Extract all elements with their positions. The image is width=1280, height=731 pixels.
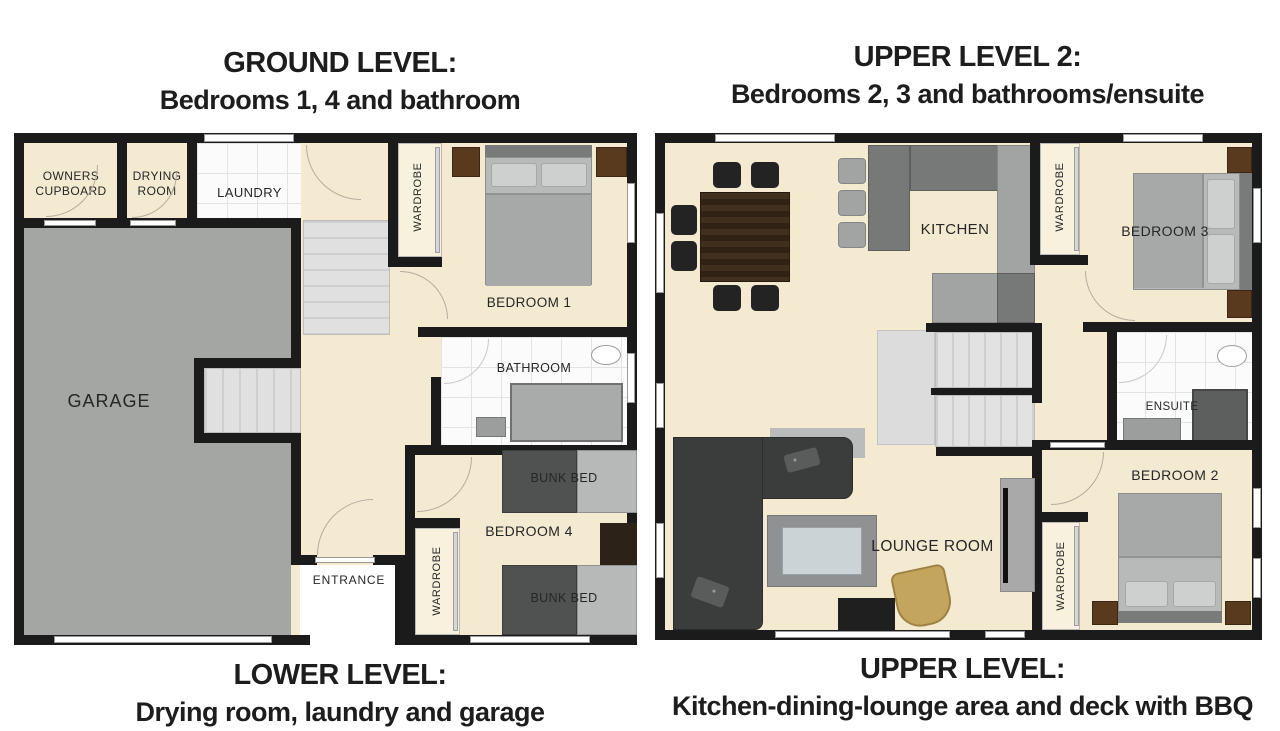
door-threshold	[130, 220, 176, 226]
ensuite-label: ENSUITE	[1117, 401, 1227, 413]
dining-chair	[671, 205, 697, 235]
stairs-upper-flight	[935, 332, 1035, 388]
ground-level-plan: WARDROBE BEDROOM 1 BATHROOM WARDROBE BUN…	[14, 133, 637, 645]
title-lower-level: LOWER LEVEL:	[55, 656, 625, 694]
wall	[1032, 323, 1042, 403]
lounge-room-label: LOUNGE ROOM	[860, 538, 1005, 556]
window	[775, 631, 950, 638]
window	[204, 134, 294, 142]
title-ground-level: GROUND LEVEL:	[55, 44, 625, 82]
window	[1253, 188, 1261, 243]
dining-table-icon	[700, 192, 790, 282]
wardrobe-bedroom1-label: WARDROBE	[412, 147, 424, 247]
entrance-threshold	[315, 557, 375, 563]
wall	[936, 447, 1042, 456]
wall	[926, 323, 1042, 332]
window	[470, 636, 590, 643]
bedroom1-label: BEDROOM 1	[454, 295, 604, 310]
floorplan-page: { "titles": { "left_top_1": "GROUND LEVE…	[0, 0, 1280, 720]
wall	[405, 518, 460, 528]
stairs-hall	[303, 220, 390, 335]
blanket	[1119, 494, 1221, 558]
wall	[194, 433, 301, 443]
wall	[655, 630, 1262, 640]
toilet-icon	[1217, 345, 1247, 367]
wall	[395, 555, 405, 645]
blanket	[486, 193, 591, 286]
dining-chair	[713, 285, 741, 311]
wall	[373, 555, 405, 565]
kitchen-counter	[868, 145, 910, 251]
tv-icon	[1003, 488, 1008, 583]
wall	[388, 133, 398, 257]
bunk-bed-top-label: BUNK BED	[514, 471, 614, 485]
bedside-table	[1092, 601, 1118, 625]
stairs-garage	[204, 368, 301, 433]
stairs-landing	[877, 330, 935, 445]
title-upper-level-2: UPPER LEVEL 2:	[660, 38, 1275, 76]
window	[1123, 134, 1203, 142]
bed-headboard	[1240, 173, 1252, 290]
window	[1253, 488, 1261, 528]
bedroom2-label: BEDROOM 2	[1105, 467, 1245, 483]
bedside-table	[452, 147, 480, 177]
wardrobe-sliding-door	[435, 147, 440, 253]
wall	[291, 218, 301, 358]
garage-door	[54, 636, 272, 643]
pillow	[541, 163, 587, 187]
bedroom4-label: BEDROOM 4	[454, 523, 604, 539]
kitchen-counter	[910, 145, 1000, 191]
pillow	[1207, 234, 1235, 284]
bar-stool	[838, 222, 866, 248]
door-threshold	[1050, 442, 1105, 448]
window	[656, 213, 664, 293]
kitchen-island	[997, 273, 1035, 323]
pillow	[1207, 179, 1235, 229]
bar-stool	[838, 190, 866, 216]
stairs-lower-flight	[935, 395, 1035, 447]
entrance-label: ENTRANCE	[304, 573, 394, 587]
bedroom3-label: BEDROOM 3	[1095, 223, 1235, 239]
window	[1253, 558, 1261, 598]
subtitle-lower-level: Drying room, laundry and garage	[55, 694, 625, 731]
wall	[418, 327, 637, 337]
room-laundry	[197, 143, 301, 218]
subtitle-ground-level: Bedrooms 1, 4 and bathroom	[55, 82, 625, 119]
window	[627, 183, 635, 243]
dining-chair	[751, 162, 779, 188]
wall	[14, 133, 24, 645]
wall	[14, 133, 637, 143]
side-unit	[600, 523, 637, 565]
wardrobe-sliding-door	[1074, 526, 1079, 626]
coffee-table-glass	[782, 527, 862, 575]
subtitle-upper-level: Kitchen-dining-lounge area and deck with…	[650, 688, 1275, 725]
bedside-table	[1227, 147, 1252, 173]
window	[627, 353, 635, 403]
laundry-label: LAUNDRY	[202, 185, 297, 200]
window	[656, 523, 664, 578]
pillow	[1173, 581, 1216, 607]
media-cabinet	[838, 598, 895, 630]
wall	[388, 257, 442, 267]
wall	[1107, 332, 1117, 448]
left-plan-title: GROUND LEVEL: Bedrooms 1, 4 and bathroom	[55, 44, 625, 119]
upper-level-plan: KITCHEN WARDROBE BEDROOM 3 ENSUITE WARDR…	[655, 133, 1262, 640]
wall	[194, 358, 204, 443]
bunk-bed-bottom-label: BUNK BED	[514, 591, 614, 605]
kitchen-island	[932, 273, 1002, 323]
right-plan-title: UPPER LEVEL 2: Bedrooms 2, 3 and bathroo…	[660, 38, 1275, 113]
wall	[1030, 143, 1040, 255]
bathroom-label: BATHROOM	[464, 361, 604, 375]
wardrobe-sliding-door	[1074, 147, 1079, 251]
wall	[1083, 322, 1262, 332]
pillow	[1125, 581, 1168, 607]
shower-icon	[1192, 389, 1248, 443]
garage-label: GARAGE	[44, 391, 174, 412]
dining-chair	[751, 285, 779, 311]
kitchen-label: KITCHEN	[910, 221, 1000, 238]
wall	[291, 443, 301, 565]
window	[715, 134, 835, 142]
wall	[405, 455, 415, 635]
wall	[194, 358, 301, 368]
bedside-table	[1225, 601, 1251, 625]
wall	[1038, 512, 1088, 522]
bed-headboard	[1118, 611, 1222, 623]
window	[985, 631, 1025, 638]
subtitle-upper-level-2: Bedrooms 2, 3 and bathrooms/ensuite	[660, 76, 1275, 113]
wall	[931, 388, 1042, 395]
bar-stool	[838, 158, 866, 184]
wardrobe-bedroom4-label: WARDROBE	[431, 531, 443, 631]
wall	[1030, 255, 1088, 265]
dining-chair	[713, 162, 741, 188]
vanity-sink-icon	[1123, 418, 1181, 442]
wall	[431, 377, 441, 445]
window	[656, 383, 664, 428]
door-threshold	[44, 220, 96, 226]
wardrobe-sliding-door	[453, 532, 458, 631]
wardrobe-bedroom2-label: WARDROBE	[1055, 526, 1067, 626]
dining-chair	[671, 241, 697, 271]
sink-icon	[476, 417, 506, 437]
title-upper-level: UPPER LEVEL:	[650, 650, 1275, 688]
right-plan-footer: UPPER LEVEL: Kitchen-dining-lounge area …	[650, 650, 1275, 725]
pillow	[491, 163, 537, 187]
bedside-table	[596, 147, 627, 177]
bedside-table	[1227, 290, 1252, 318]
wardrobe-bedroom3-label: WARDROBE	[1054, 147, 1066, 247]
bathtub-icon	[510, 383, 623, 442]
